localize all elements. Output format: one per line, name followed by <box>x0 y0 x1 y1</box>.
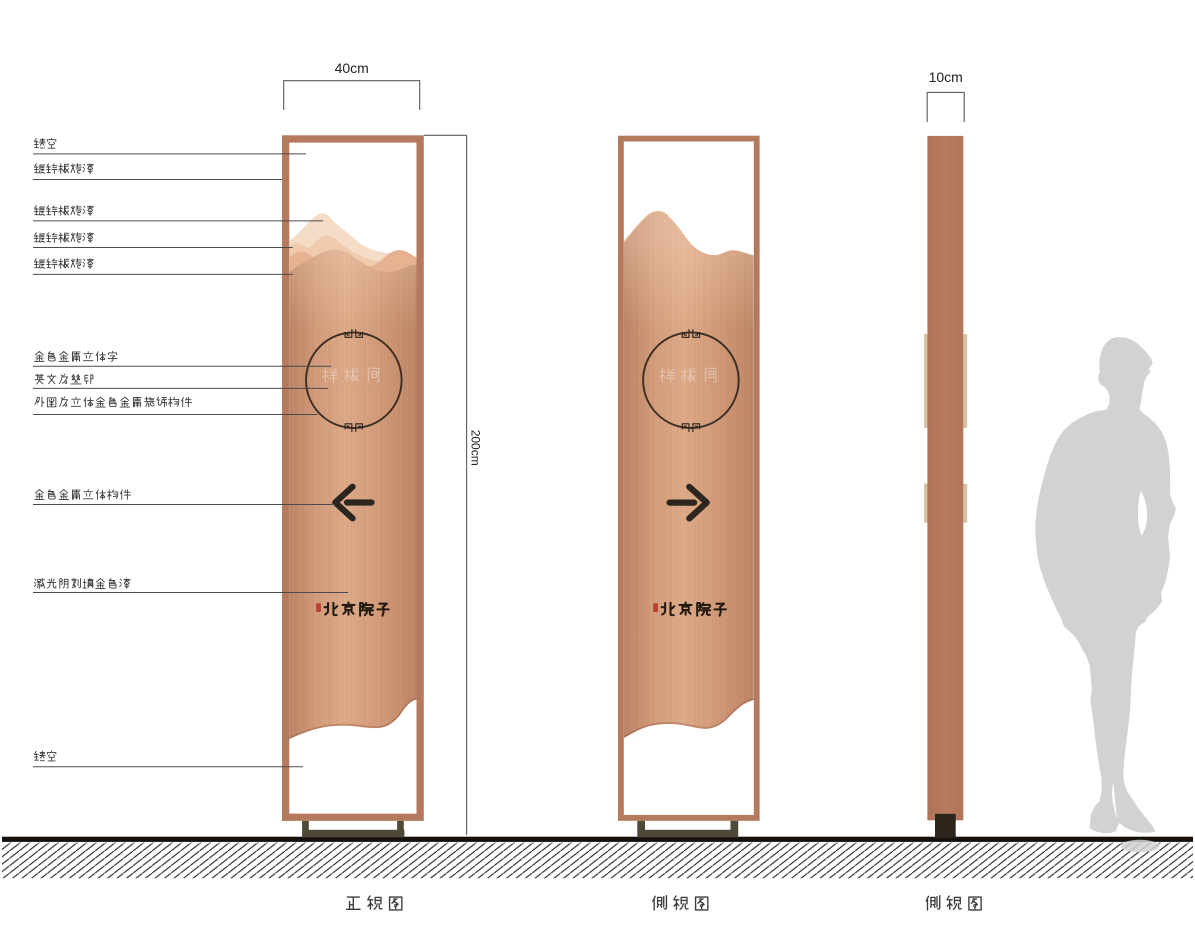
svg-text:SAMPLE ROOM: SAMPLE ROOM <box>661 388 721 394</box>
svg-text:200cm: 200cm <box>468 430 482 466</box>
svg-text:40cm: 40cm <box>335 60 369 76</box>
svg-text:SAMPLE ROOM: SAMPLE ROOM <box>324 388 384 394</box>
svg-text:10cm: 10cm <box>929 69 963 85</box>
